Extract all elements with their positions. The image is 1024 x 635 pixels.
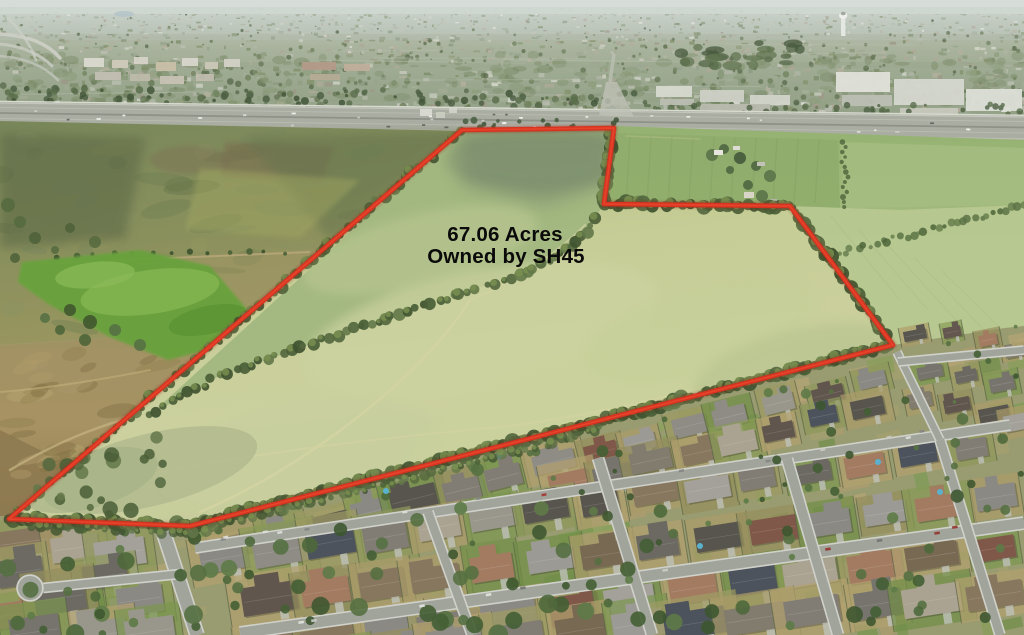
svg-text:67.06 Acres: 67.06 Acres (447, 223, 562, 246)
svg-text:Owned by SH45: Owned by SH45 (427, 245, 585, 268)
